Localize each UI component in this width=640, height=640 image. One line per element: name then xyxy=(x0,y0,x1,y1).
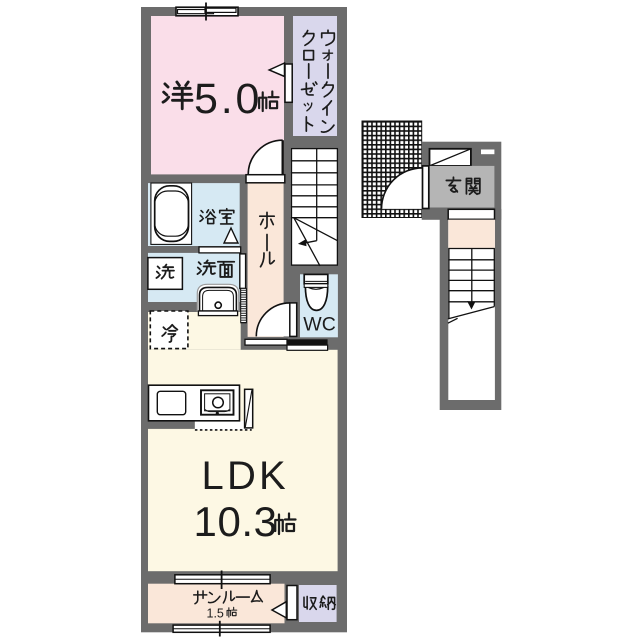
svg-text:10.3: 10.3 xyxy=(194,498,278,545)
svg-text:5.0: 5.0 xyxy=(194,75,262,123)
svg-text:WC: WC xyxy=(303,314,336,336)
svg-text:LDK: LDK xyxy=(202,454,289,498)
svg-text:1.5: 1.5 xyxy=(207,607,224,621)
